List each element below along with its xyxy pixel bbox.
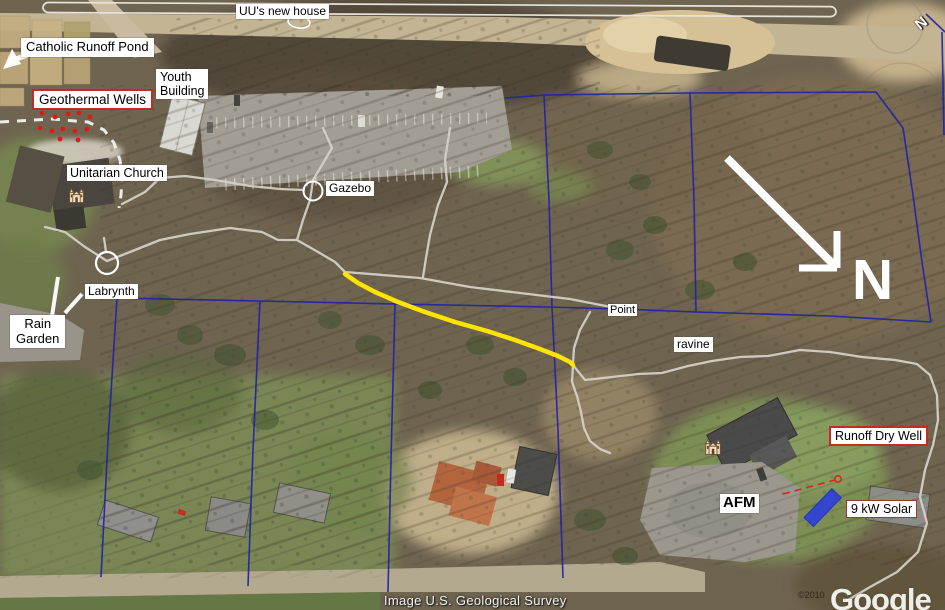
label-youth-building: Youth Building — [156, 69, 208, 99]
lawn-texture — [0, 378, 390, 578]
label-uu-new-house: UU's new house — [236, 4, 329, 19]
label-point: Point — [608, 304, 637, 316]
annotated-aerial-map: UU's new house Catholic Runoff Pond Yout… — [0, 0, 945, 610]
label-rain-garden: Rain Garden — [10, 315, 65, 348]
label-geothermal-wells: Geothermal Wells — [32, 89, 153, 110]
label-labrynth: Labrynth — [85, 284, 138, 299]
forest-texture-top — [170, 18, 600, 96]
label-ravine: ravine — [674, 337, 713, 352]
sand-pit — [585, 10, 775, 74]
imagery-credit: Image U.S. Geological Survey — [384, 593, 567, 608]
compass-n-large: N — [852, 252, 893, 309]
label-unitarian-church: Unitarian Church — [67, 165, 167, 181]
label-catholic-runoff-pond: Catholic Runoff Pond — [21, 38, 154, 57]
label-gazebo: Gazebo — [326, 181, 374, 196]
label-solar: 9 kW Solar — [846, 500, 917, 518]
google-watermark: Google — [830, 582, 931, 610]
label-afm: AFM — [720, 494, 759, 513]
copyright-text: ©2010 — [798, 590, 825, 600]
label-runoff-dry-well: Runoff Dry Well — [829, 426, 928, 446]
